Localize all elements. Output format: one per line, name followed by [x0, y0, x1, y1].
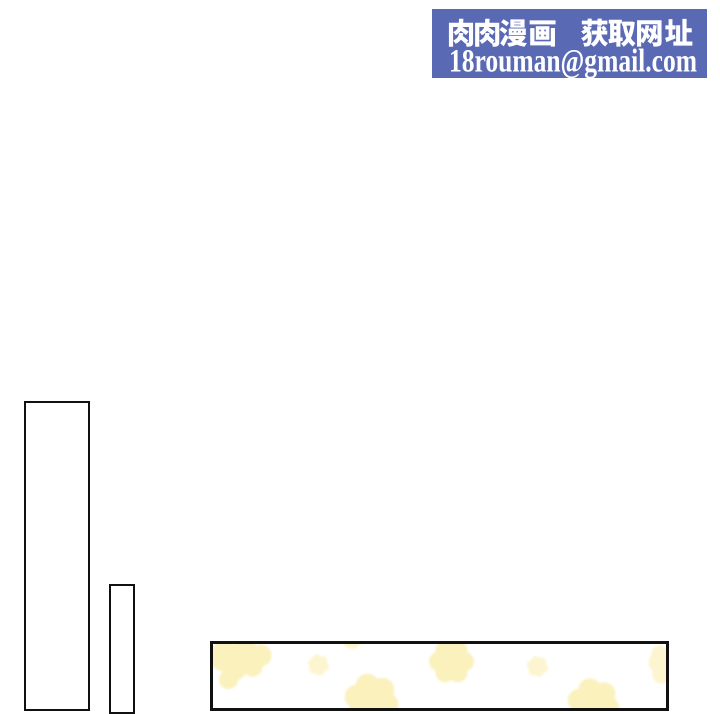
svg-text:18rouman@gmail.com: 18rouman@gmail.com: [449, 44, 697, 79]
